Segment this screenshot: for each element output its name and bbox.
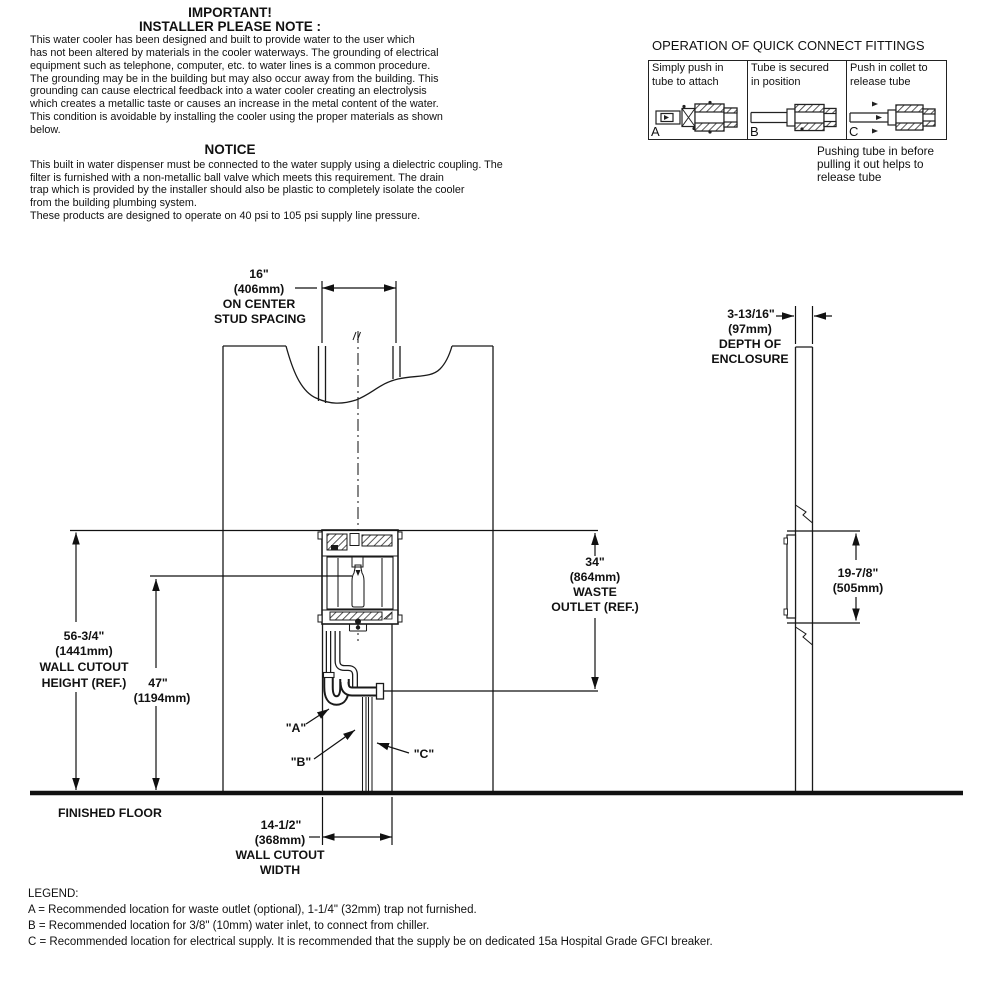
dim-depth-l4: ENCLOSURE <box>711 352 788 366</box>
dim-side-height: 19-7/8" (505mm) <box>787 531 883 623</box>
dim-cutout-height-l3: WALL CUTOUT <box>39 660 129 674</box>
dim-waste-l4: OUTLET (REF.) <box>551 600 638 614</box>
dim-cutout-width-l4: WIDTH <box>260 863 300 877</box>
dim-waste-mm: (864mm) <box>570 570 621 584</box>
dim-side-height-value: 19-7/8" <box>838 566 879 580</box>
dim-cutout-width-mm: (368mm) <box>255 833 306 847</box>
dim-cutout-height-value: 56-3/4" <box>64 629 105 643</box>
dim-depth-of-enclosure: 3-13/16" (97mm) DEPTH OF ENCLOSURE <box>711 306 832 366</box>
label-c: "C" <box>414 747 435 761</box>
dim-cutout-width: 14-1/2" (368mm) WALL CUTOUT WIDTH <box>235 797 392 877</box>
leader-labels: "A" "B" "C" <box>286 709 435 769</box>
dim-stud-spacing-l3: ON CENTER <box>223 297 296 311</box>
dim-side-height-mm: (505mm) <box>833 581 884 595</box>
dim-cutout-width-l3: WALL CUTOUT <box>235 848 325 862</box>
dim-47-mm: (1194mm) <box>134 691 191 705</box>
dim-depth-value: 3-13/16" <box>727 307 775 321</box>
dim-cutout-height-mm: (1441mm) <box>55 644 112 658</box>
dim-stud-spacing-value: 16" <box>249 267 269 281</box>
label-a: "A" <box>286 721 307 735</box>
dim-47-value: 47" <box>148 676 168 690</box>
label-b: "B" <box>291 755 312 769</box>
finished-floor-label: FINISHED FLOOR <box>58 806 162 820</box>
legend-item-a: A = Recommended location for waste outle… <box>28 902 713 918</box>
dim-cutout-height: 56-3/4" (1441mm) WALL CUTOUT HEIGHT (REF… <box>39 533 129 791</box>
dim-cutout-height-l4: HEIGHT (REF.) <box>42 676 127 690</box>
drain-trap-assembly <box>324 631 384 791</box>
dim-stud-spacing-mm: (406mm) <box>234 282 285 296</box>
dim-waste-outlet: 34" (864mm) WASTE OUTLET (REF.) <box>384 533 639 691</box>
legend-item-b: B = Recommended location for 3/8" (10mm)… <box>28 918 713 934</box>
legend: LEGEND: A = Recommended location for was… <box>28 886 713 950</box>
water-dispenser-unit <box>318 530 402 631</box>
dim-47: 47" (1194mm) <box>134 576 352 790</box>
dim-waste-l3: WASTE <box>573 585 617 599</box>
dim-depth-l3: DEPTH OF <box>719 337 782 351</box>
dim-waste-value: 34" <box>585 555 605 569</box>
wall-side-view <box>784 347 813 791</box>
installation-diagram: 16" (406mm) ON CENTER STUD SPACING 3-13/… <box>0 0 994 1000</box>
installation-sheet: IMPORTANT! INSTALLER PLEASE NOTE : This … <box>0 0 994 1000</box>
dim-depth-mm: (97mm) <box>728 322 772 336</box>
legend-item-c: C = Recommended location for electrical … <box>28 934 713 950</box>
legend-title: LEGEND: <box>28 886 713 902</box>
dim-cutout-width-value: 14-1/2" <box>261 818 302 832</box>
dim-stud-spacing: 16" (406mm) ON CENTER STUD SPACING <box>214 267 396 343</box>
dim-stud-spacing-l4: STUD SPACING <box>214 312 306 326</box>
